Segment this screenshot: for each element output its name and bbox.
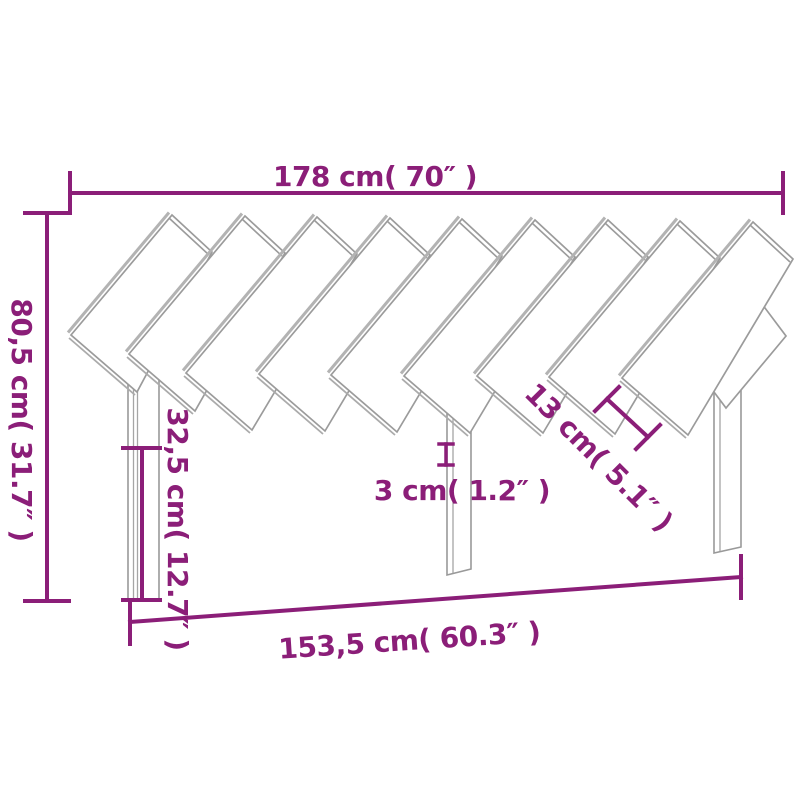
dim-total-width-label: 178 cm( 70″ )	[273, 160, 477, 193]
dim-panel-height-label: 32,5 cm( 12.7″ )	[161, 407, 194, 650]
diagram-canvas: 178 cm( 70″ ) 80,5 cm( 31.7″ ) 32,5 cm( …	[0, 0, 800, 800]
dim-base-width-label: 153,5 cm( 60.3″ )	[277, 615, 541, 665]
headboard-drawing: 178 cm( 70″ ) 80,5 cm( 31.7″ ) 32,5 cm( …	[0, 0, 800, 800]
dim-leg-thickness-label: 3 cm( 1.2″ )	[374, 474, 550, 507]
dim-total-height-label: 80,5 cm( 31.7″ )	[5, 298, 38, 541]
